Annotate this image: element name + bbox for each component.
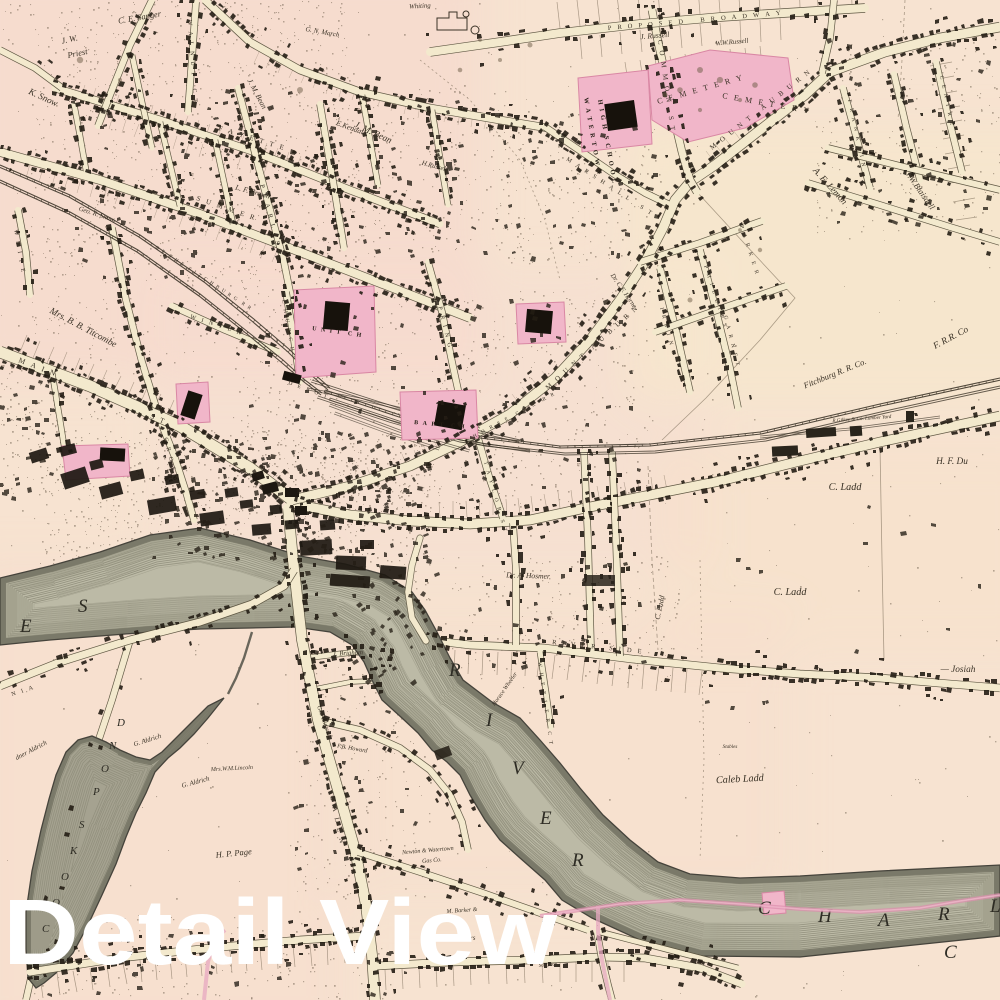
svg-text:C: C	[758, 898, 771, 919]
svg-text:P: P	[92, 786, 100, 798]
svg-text:S: S	[78, 596, 88, 617]
svg-text:N: N	[108, 740, 117, 752]
svg-text:R: R	[571, 850, 584, 871]
svg-text:H. F. Du: H. F. Du	[935, 457, 968, 467]
svg-text:K: K	[69, 845, 78, 857]
svg-text:— Josiah: — Josiah	[940, 665, 976, 675]
svg-text:Detail View: Detail View	[3, 880, 558, 984]
svg-text:D: D	[116, 717, 125, 729]
svg-text:C: C	[944, 942, 957, 963]
svg-text:C. Ladd: C. Ladd	[774, 587, 808, 598]
svg-text:E: E	[539, 808, 552, 829]
svg-text:E: E	[19, 616, 32, 637]
svg-text:O: O	[101, 763, 109, 775]
svg-text:C. Ladd: C. Ladd	[829, 482, 863, 493]
svg-text:Stables: Stables	[723, 744, 738, 750]
svg-text:R: R	[937, 904, 950, 925]
svg-text:Dr. A. Hosmer: Dr. A. Hosmer	[505, 570, 550, 581]
svg-text:R: R	[448, 660, 461, 681]
svg-text:L: L	[989, 896, 1000, 917]
svg-text:Whiting: Whiting	[409, 2, 431, 10]
svg-text:S: S	[79, 819, 85, 831]
svg-text:A: A	[876, 910, 890, 931]
